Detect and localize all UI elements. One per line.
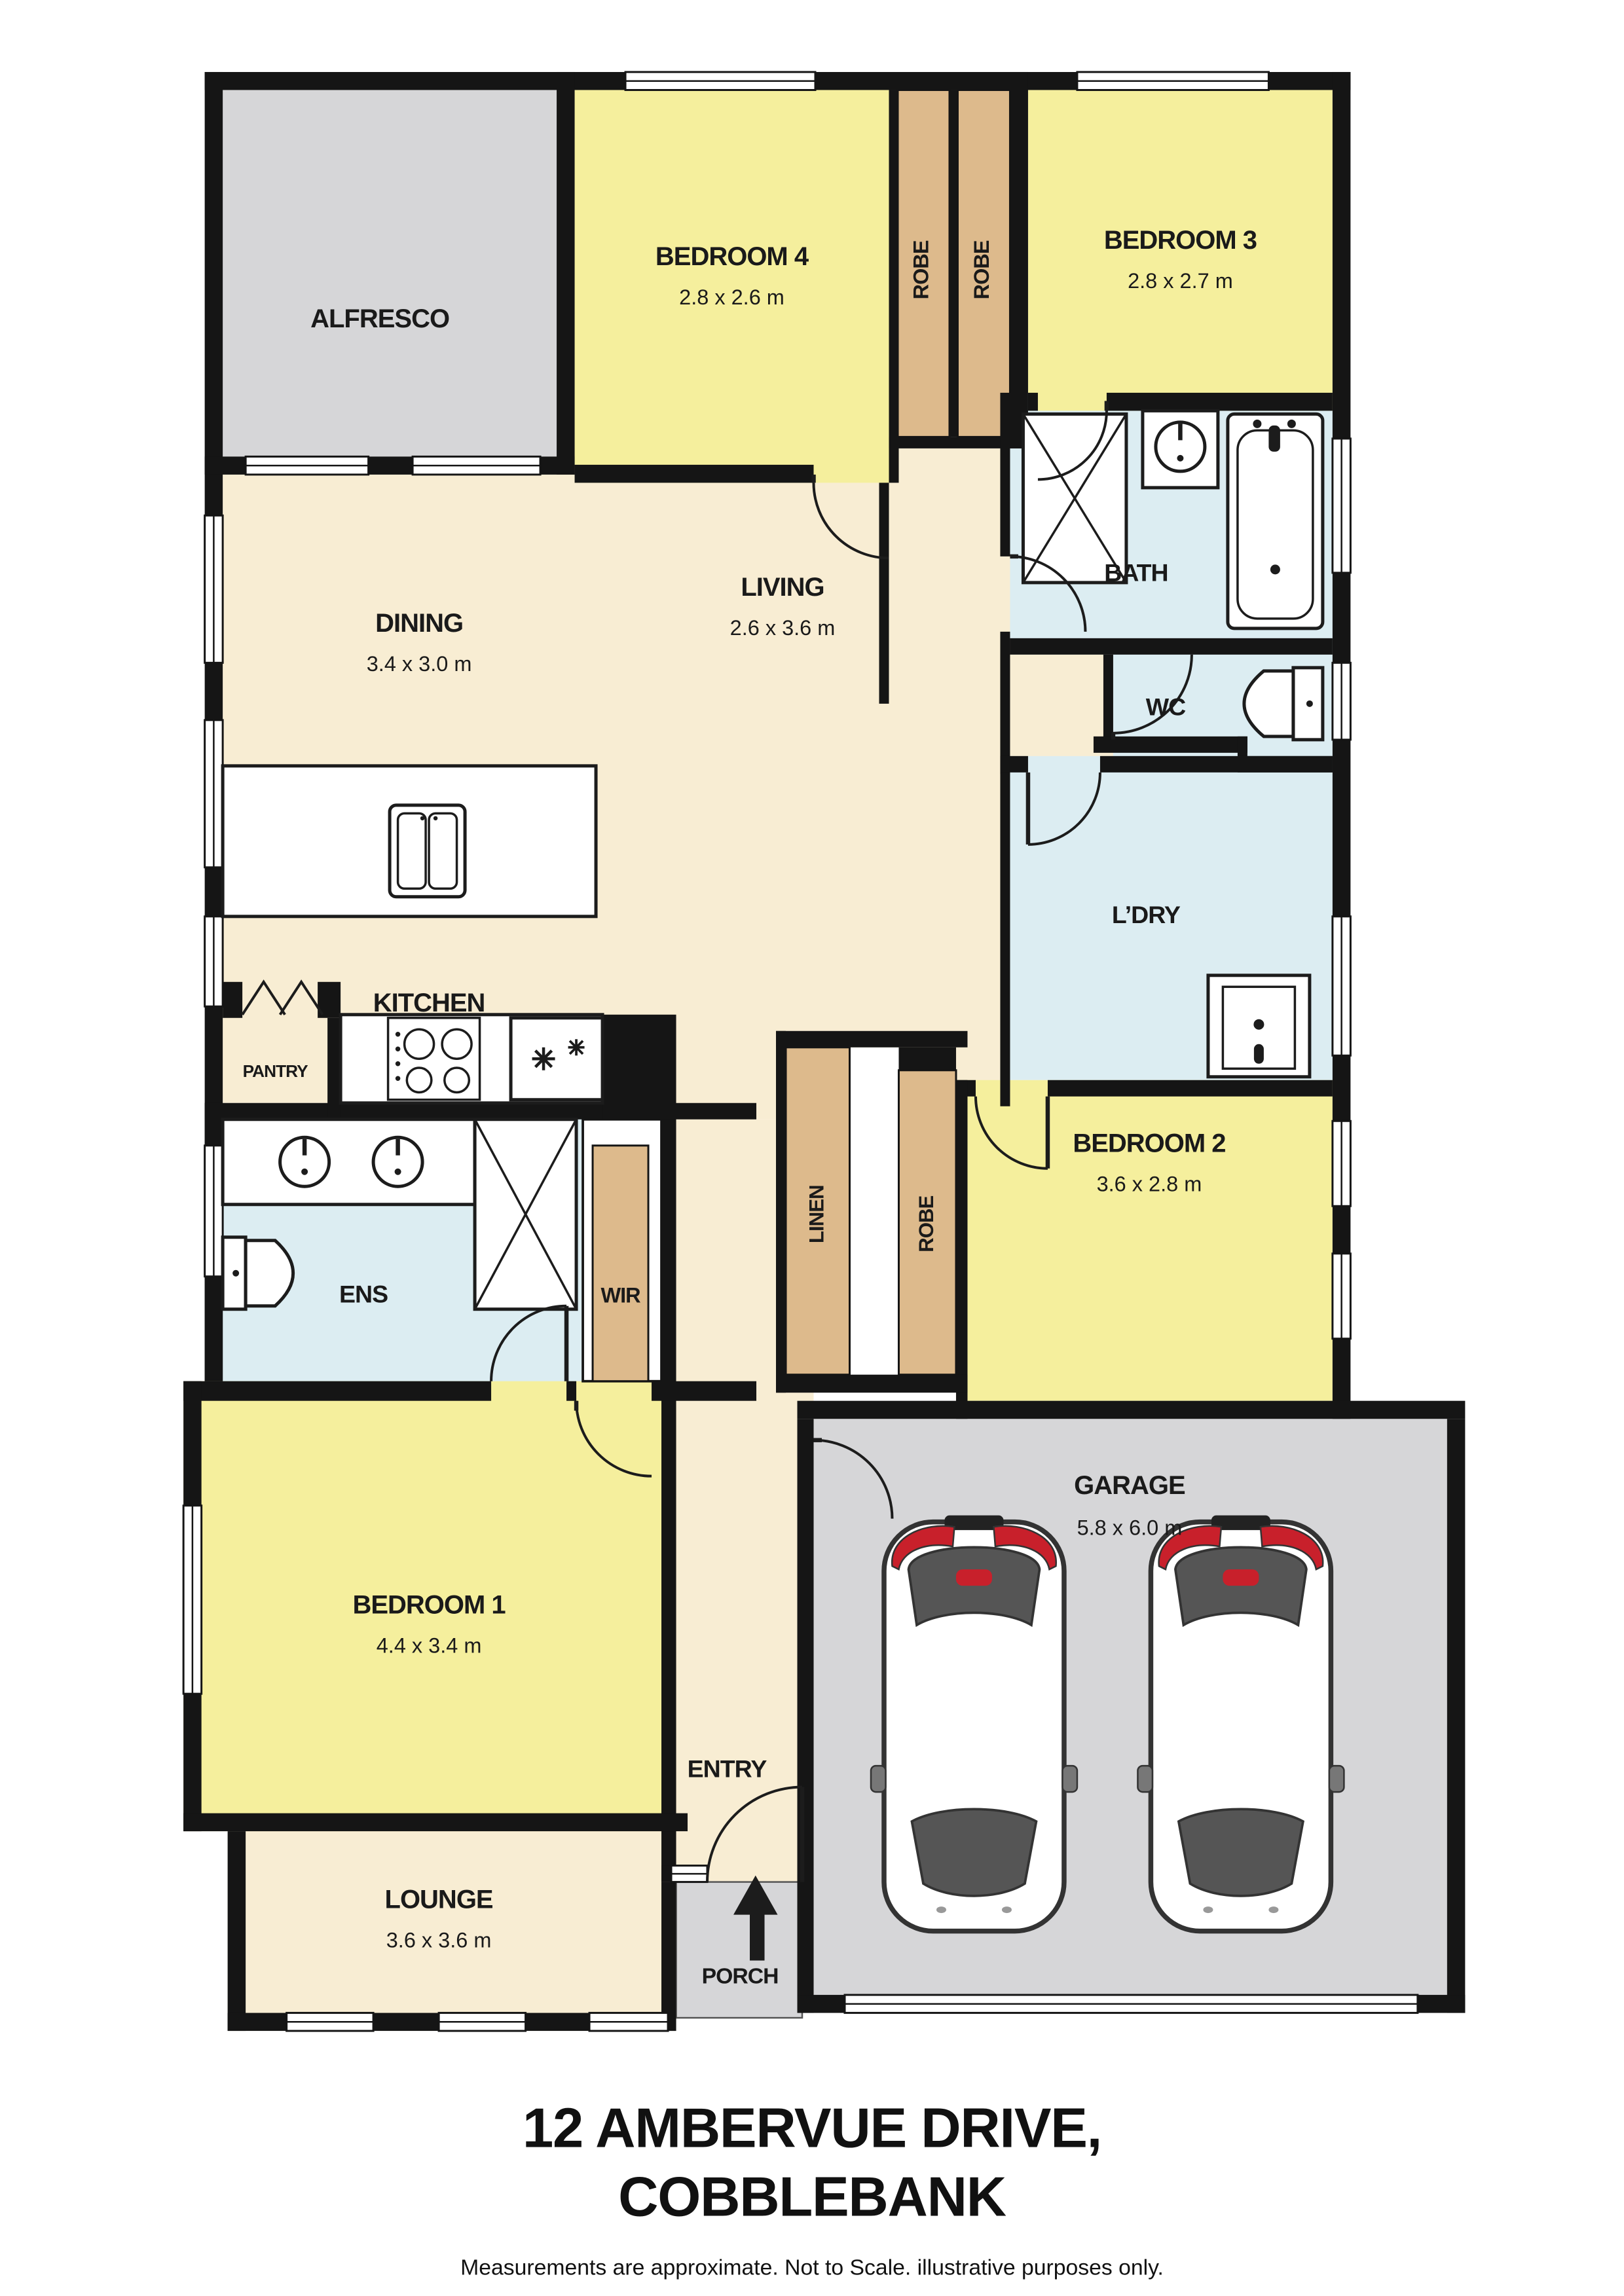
kitchen-island (223, 766, 596, 917)
room-label-wir: WIR (600, 1284, 640, 1307)
room-label-dining: DINING (375, 609, 463, 638)
window (1333, 1121, 1350, 1206)
window (205, 1146, 223, 1277)
double-sink (390, 805, 465, 897)
wc-toilet (1244, 668, 1323, 740)
bath-basin (1143, 410, 1218, 487)
room-dims-dining: 3.4 x 3.0 m (367, 652, 472, 676)
window (1333, 663, 1350, 739)
room-label-robe-right: ROBE (970, 240, 993, 299)
car-icon (871, 1516, 1077, 1931)
window (1077, 72, 1268, 90)
disclaimer-text: Measurements are approximate. Not to Sca… (460, 2255, 1164, 2280)
ens-toilet (223, 1237, 293, 1309)
window (625, 72, 815, 90)
room-floor-alfresco (205, 90, 557, 474)
ens-vanity (223, 1120, 475, 1205)
room-label-garage: GARAGE (1074, 1471, 1185, 1500)
window (439, 2013, 525, 2031)
room-label-wc: WC (1146, 693, 1186, 720)
room-floor-porch (676, 1882, 802, 2018)
room-label-lounge: LOUNGE (385, 1886, 493, 1914)
car-icon (1137, 1516, 1344, 1931)
room-label-bedroom2: BEDROOM 2 (1073, 1129, 1225, 1158)
window (287, 2013, 373, 2031)
room-dims-bedroom2: 3.6 x 2.8 m (1097, 1173, 1202, 1196)
floor-plan: ALFRESCO BEDROOM 4 2.8 x 2.6 m ROBE ROBE… (0, 0, 1624, 2296)
room-label-robe-bed2: ROBE (915, 1195, 938, 1252)
window (205, 515, 223, 663)
laundry-tub (1208, 975, 1310, 1077)
room-dims-garage: 5.8 x 6.0 m (1077, 1516, 1183, 1540)
room-label-bedroom1: BEDROOM 1 (353, 1591, 506, 1620)
room-dims-bedroom4: 2.8 x 2.6 m (679, 285, 784, 309)
room-label-bath: BATH (1104, 558, 1168, 586)
room-label-pantry: PANTRY (243, 1061, 308, 1081)
window (1333, 439, 1350, 573)
room-label-linen: LINEN (805, 1185, 828, 1243)
snowflake-icon (532, 1048, 555, 1070)
window (205, 720, 223, 867)
room-label-living: LIVING (741, 573, 824, 602)
room-label-porch: PORCH (702, 1964, 779, 1989)
bath-shower (1023, 414, 1126, 582)
closet-bg-linen-gap (849, 1048, 898, 1388)
room-dims-bedroom1: 4.4 x 3.4 m (377, 1634, 482, 1658)
fridge (511, 1018, 602, 1100)
room-floor-lounge (228, 1813, 676, 2031)
room-label-kitchen: KITCHEN (373, 989, 485, 1017)
window (1333, 1254, 1350, 1339)
ens-shower (475, 1120, 576, 1309)
window (183, 1506, 201, 1694)
closet-floor-wir (593, 1146, 648, 1381)
window (1333, 917, 1350, 1055)
garage-door (845, 1995, 1418, 2013)
window (205, 917, 223, 1006)
room-label-bedroom3: BEDROOM 3 (1104, 226, 1257, 255)
window (671, 1866, 707, 1882)
address-title-line2: COBBLEBANK (618, 2166, 1006, 2229)
kitchen-counter (341, 1015, 602, 1103)
room-label-ens: ENS (339, 1281, 388, 1308)
window (413, 456, 540, 474)
room-label-laundry: L’DRY (1112, 901, 1181, 928)
address-title-line1: 12 AMBERVUE DRIVE, (523, 2098, 1101, 2160)
window (246, 456, 368, 474)
room-label-bedroom4: BEDROOM 4 (655, 242, 809, 271)
snowflake-icon (568, 1039, 585, 1055)
title-block: 12 AMBERVUE DRIVE, COBBLEBANK Measuremen… (460, 2098, 1164, 2280)
window (589, 2013, 668, 2031)
floor-plan-svg: ALFRESCO BEDROOM 4 2.8 x 2.6 m ROBE ROBE… (0, 0, 1624, 2296)
room-dims-living: 2.6 x 3.6 m (730, 616, 836, 640)
room-label-alfresco: ALFRESCO (310, 304, 449, 333)
room-label-robe-left: ROBE (909, 240, 932, 299)
room-dims-bedroom3: 2.8 x 2.7 m (1128, 269, 1233, 293)
room-label-entry: ENTRY (688, 1755, 767, 1783)
room-dims-lounge: 3.6 x 3.6 m (386, 1929, 492, 1952)
bathtub (1228, 414, 1323, 628)
